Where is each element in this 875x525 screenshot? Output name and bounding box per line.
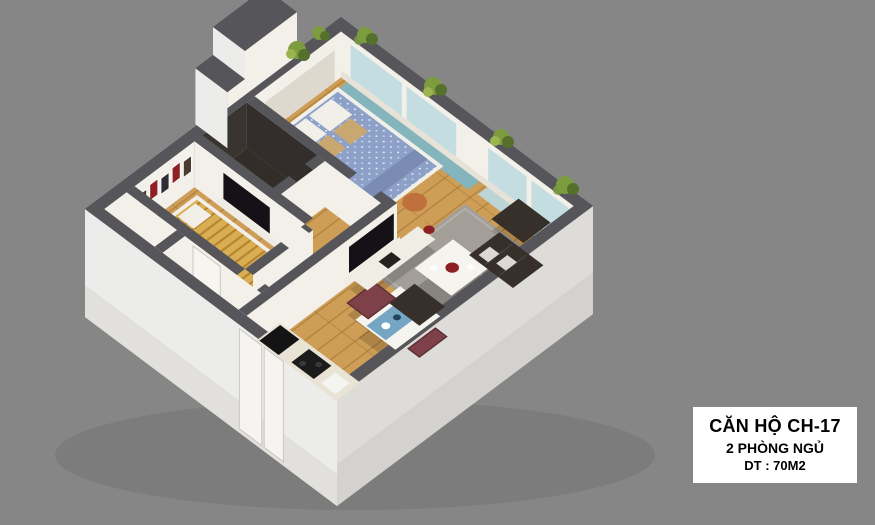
plant: [553, 176, 579, 195]
screenshot-canvas: CĂN HỘ CH-17 2 PHÒNG NGỦ DT : 70M2: [0, 0, 875, 525]
apartment-name: CĂN HỘ CH-17: [709, 416, 841, 437]
plant: [423, 77, 447, 97]
apartment-info-card: CĂN HỘ CH-17 2 PHÒNG NGỦ DT : 70M2: [693, 407, 857, 483]
entrance-door: [239, 329, 261, 446]
entrance-door: [264, 347, 283, 461]
apartment-bedrooms: 2 PHÒNG NGỦ: [726, 440, 824, 456]
apartment-area: DT : 70M2: [744, 459, 805, 474]
